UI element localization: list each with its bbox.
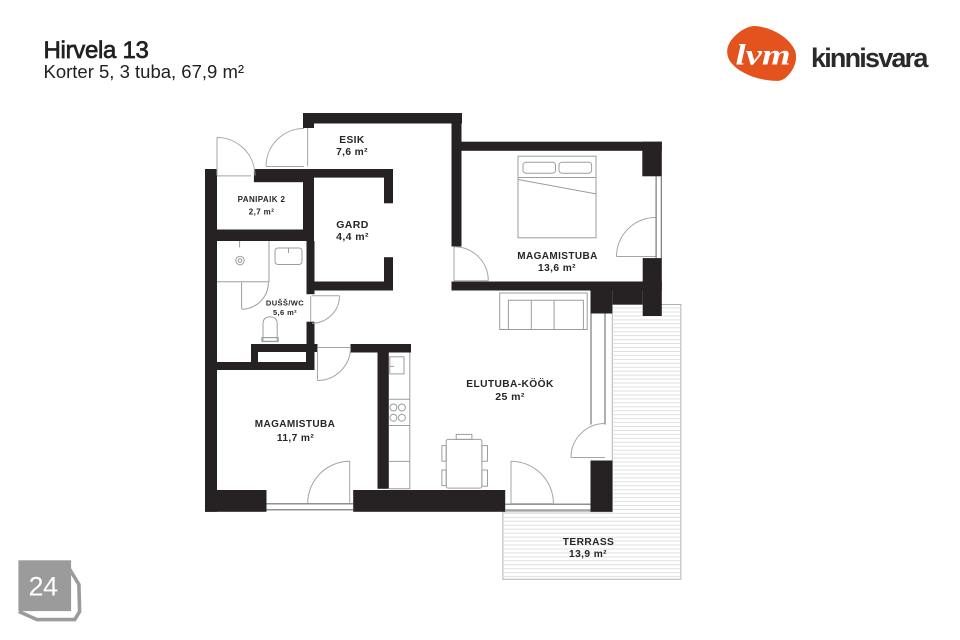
svg-text:PANIPAIK 2: PANIPAIK 2 [238,195,286,204]
svg-text:lvm: lvm [736,39,791,72]
svg-text:25 m²: 25 m² [495,391,525,403]
svg-text:DUŠŠ/WC: DUŠŠ/WC [266,298,304,307]
svg-text:4,4 m²: 4,4 m² [336,231,369,243]
svg-text:Korter 5, 3 tuba, 67,9 m²: Korter 5, 3 tuba, 67,9 m² [44,61,245,82]
svg-text:7,6 m²: 7,6 m² [336,147,368,158]
svg-text:kinnisvara: kinnisvara [811,43,929,73]
svg-text:TERRASS: TERRASS [563,537,614,548]
svg-text:24: 24 [28,572,58,602]
svg-text:2,7 m²: 2,7 m² [249,207,275,216]
svg-text:11,7 m²: 11,7 m² [277,433,315,444]
svg-text:Hirvela 13: Hirvela 13 [44,37,149,64]
svg-text:13,9 m²: 13,9 m² [569,549,607,560]
svg-text:MAGAMISTUBA: MAGAMISTUBA [517,251,598,262]
svg-text:ELUTUBA-KÖÖK: ELUTUBA-KÖÖK [466,377,554,390]
svg-text:ESIK: ESIK [339,135,365,146]
svg-text:5,6 m²: 5,6 m² [273,308,297,317]
svg-text:13,6 m²: 13,6 m² [538,263,576,274]
svg-text:MAGAMISTUBA: MAGAMISTUBA [255,419,336,430]
svg-text:GARD: GARD [336,219,369,231]
